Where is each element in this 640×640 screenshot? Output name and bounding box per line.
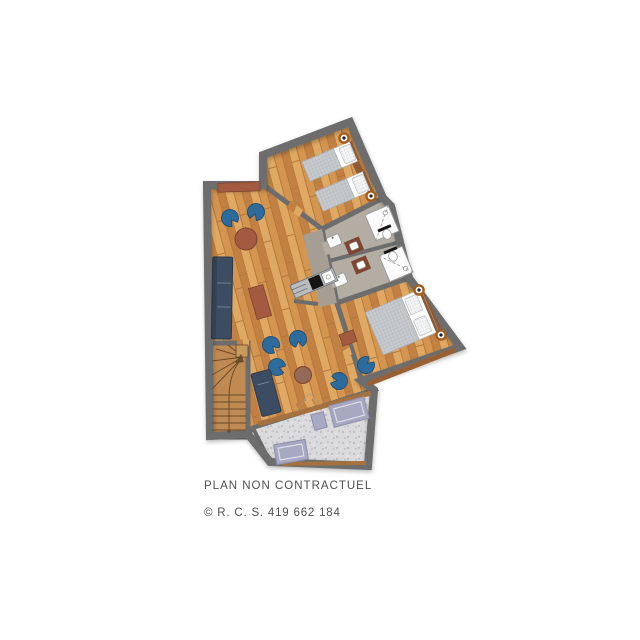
floor-plan-svg [0,0,640,640]
sofa [211,257,232,339]
stair-landing [236,345,248,357]
wall-light [436,330,445,339]
floor-plan-page: PLAN NON CONTRACTUEL © R. C. S. 419 662 … [0,0,640,640]
sideboard [218,182,260,192]
plan-registration: © R. C. S. 419 662 184 [204,507,341,519]
wall-light [366,191,375,200]
terrace-wood-band-bottom [282,463,366,464]
round-table [295,367,312,384]
wall-light [414,285,423,294]
coffee-table [235,228,257,250]
plan-caption: PLAN NON CONTRACTUEL [204,480,372,492]
wall-light [339,133,348,142]
